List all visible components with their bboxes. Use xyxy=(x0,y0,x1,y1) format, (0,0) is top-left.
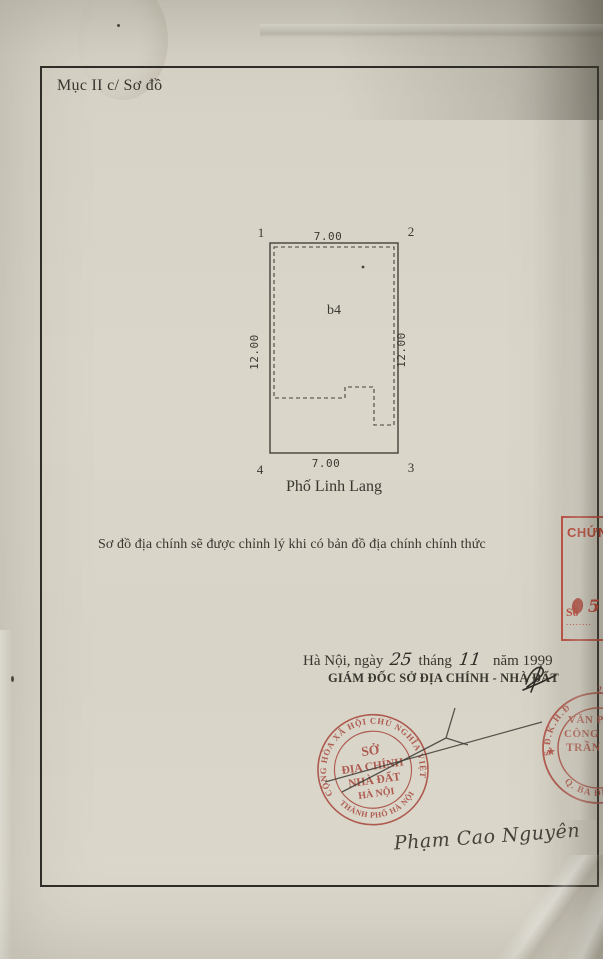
survey-point-dot xyxy=(362,266,365,269)
notary-line3: TRẦN xyxy=(566,739,601,754)
notary-corner-digit: 2 xyxy=(597,685,602,696)
ink-speck xyxy=(117,24,120,27)
handwritten-day: 25 xyxy=(389,650,413,670)
corner-label-2: 2 xyxy=(408,224,415,239)
paper-crease-top xyxy=(260,24,603,38)
corner-label-1: 1 xyxy=(258,225,265,240)
notary-line2: CÔNG xyxy=(564,727,599,740)
section-label: Mục II c/ Sơ đồ xyxy=(57,77,162,95)
corner-label-3: 3 xyxy=(408,460,415,475)
ink-speck xyxy=(11,676,14,682)
notary-line1: VĂN P xyxy=(568,714,603,726)
signature-pen-strokes xyxy=(300,690,560,820)
place-date-prefix: Hà Nội, ngày xyxy=(303,653,383,669)
plot-label: b4 xyxy=(327,303,341,318)
dimension-right: 12.00 xyxy=(395,332,408,368)
dimension-top: 7.00 xyxy=(314,230,343,243)
notary-star-icon: ★ xyxy=(546,746,556,758)
cert-box-number: 5 xyxy=(588,597,600,617)
certification-stamp-box: CHỨNG Số ........ 5 xyxy=(561,516,603,641)
street-name: Phố Linh Lang xyxy=(244,478,424,496)
red-seal-blob xyxy=(571,597,585,615)
corner-label-4: 4 xyxy=(257,462,264,477)
cert-box-title: CHỨNG xyxy=(567,525,603,540)
cert-box-dots: ........ xyxy=(566,617,592,627)
handwritten-month: 11 xyxy=(457,650,481,670)
month-label: tháng xyxy=(419,653,452,669)
notary-seal: S.Đ.K.H.Đ Q. BA ĐÌNH ★ 2 VĂN P CÔNG TRẦN xyxy=(533,683,603,815)
building-outline-dashed xyxy=(274,247,394,425)
year-label: năm xyxy=(493,653,519,669)
parcel-boundary xyxy=(270,243,398,453)
note-text: Sơ đồ địa chính sẽ được chỉnh lý khi có … xyxy=(98,537,528,553)
dimension-bottom: 7.00 xyxy=(312,457,341,470)
scanned-document-photo: Mục II c/ Sơ đồ 1 2 3 4 7.00 7.00 12.00 … xyxy=(0,0,603,959)
plot-diagram: 1 2 3 4 7.00 7.00 12.00 12.00 b4 xyxy=(230,215,430,480)
dimension-left: 12.00 xyxy=(248,334,261,370)
